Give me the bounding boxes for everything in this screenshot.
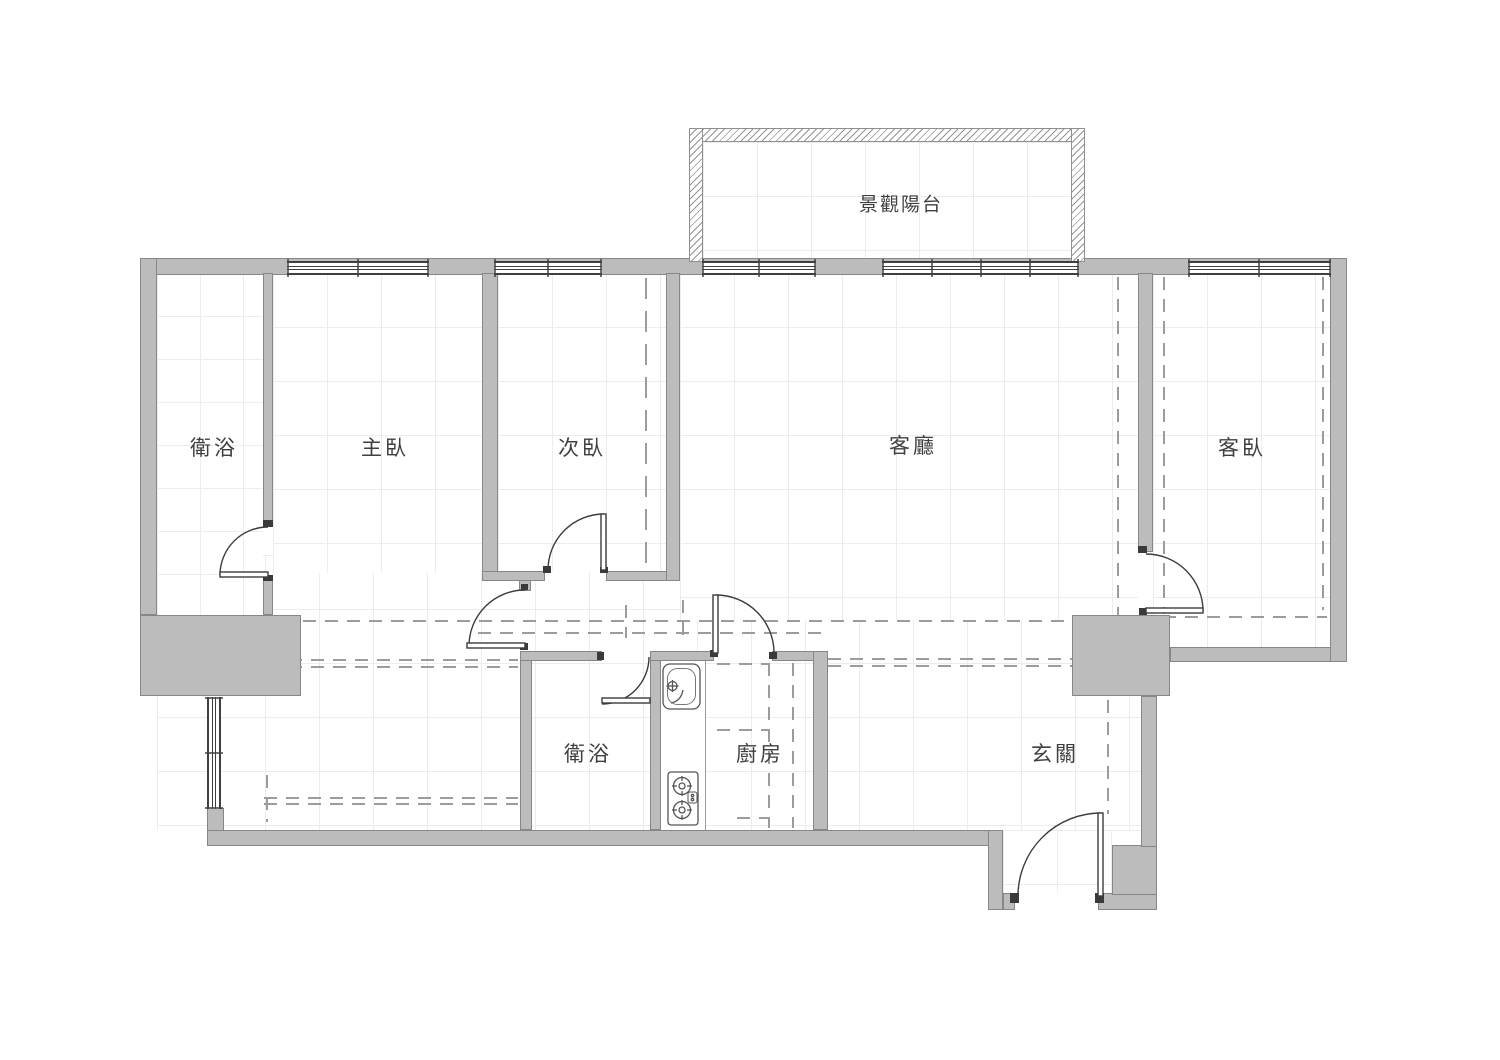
window xyxy=(702,261,816,275)
dashed-line xyxy=(828,665,1072,667)
dashed-line xyxy=(737,817,768,819)
room-label-bath-upper: 衛浴 xyxy=(190,432,238,462)
dashed-line xyxy=(303,620,1072,622)
room-label-living-room: 客廳 xyxy=(889,430,937,460)
wall-entry-left xyxy=(988,830,1003,910)
room-label-balcony: 景觀陽台 xyxy=(859,190,943,217)
window xyxy=(287,261,429,275)
room-label-bath-lower: 衛浴 xyxy=(564,738,612,768)
dashed-line xyxy=(717,729,768,731)
wall-entry-right xyxy=(1141,696,1157,847)
wall-entry-bottom-left xyxy=(1003,893,1015,910)
room-floor-second-bedroom xyxy=(498,273,666,571)
dashed-line xyxy=(1322,277,1324,610)
dashed-line xyxy=(478,632,828,634)
wall-bath-lower-top xyxy=(520,651,602,661)
dashed-line xyxy=(264,797,518,799)
wall-bath-upper-right-b xyxy=(263,575,273,615)
dashed-line xyxy=(1163,616,1327,618)
room-floor-master-bedroom xyxy=(273,273,482,573)
column-left xyxy=(140,615,301,696)
wall-bottom xyxy=(207,830,1003,846)
window xyxy=(207,697,221,809)
kitchen-counter xyxy=(661,661,706,830)
wall-right xyxy=(1330,258,1347,662)
room-label-second-bedroom: 次臥 xyxy=(558,432,606,462)
room-label-guest-bedroom: 客臥 xyxy=(1218,432,1266,462)
dashed-line xyxy=(1163,277,1165,614)
wall-left-lower-stub xyxy=(207,808,224,832)
dashed-line xyxy=(266,775,268,822)
room-label-master-bedroom: 主臥 xyxy=(361,432,409,462)
dashed-line xyxy=(717,663,768,665)
window xyxy=(494,261,602,275)
window xyxy=(882,261,1079,275)
wall-counter-left xyxy=(650,651,661,830)
balcony-wall-top xyxy=(689,128,1085,142)
wall-master-second xyxy=(482,273,498,580)
wall-master-door-stub xyxy=(519,580,531,591)
dashed-line xyxy=(828,658,1072,660)
wall-second-right xyxy=(666,273,680,581)
wall-counter-top xyxy=(650,651,714,661)
balcony-wall-right xyxy=(1071,128,1085,262)
wall-guest-bottom xyxy=(1170,647,1347,662)
dashed-line xyxy=(792,663,794,828)
dashed-line xyxy=(264,803,518,805)
wall-second-bottom-left xyxy=(482,571,545,581)
window xyxy=(1188,261,1331,275)
wall-guest-left xyxy=(1138,273,1153,552)
floor-plan: 景觀陽台 衛浴 主臥 次臥 客廳 客臥 衛浴 廚房 玄關 xyxy=(0,0,1500,1060)
column-right xyxy=(1072,615,1170,696)
wall-entry-pier xyxy=(1112,845,1157,895)
balcony-wall-left xyxy=(689,128,703,262)
wall-bath-upper-right-a xyxy=(263,273,273,527)
wall-entry-bottom-right xyxy=(1098,893,1157,910)
dashed-line xyxy=(1117,277,1119,617)
wall-bath-lower-left xyxy=(520,651,532,830)
dashed-line xyxy=(625,605,627,638)
wall-left xyxy=(140,258,157,615)
dashed-line xyxy=(645,278,647,568)
wall-kitchen-right xyxy=(813,651,828,830)
room-label-entry: 玄關 xyxy=(1031,738,1079,768)
dashed-line xyxy=(1107,700,1109,814)
room-label-kitchen: 廚房 xyxy=(736,738,784,768)
dashed-line xyxy=(682,600,684,638)
